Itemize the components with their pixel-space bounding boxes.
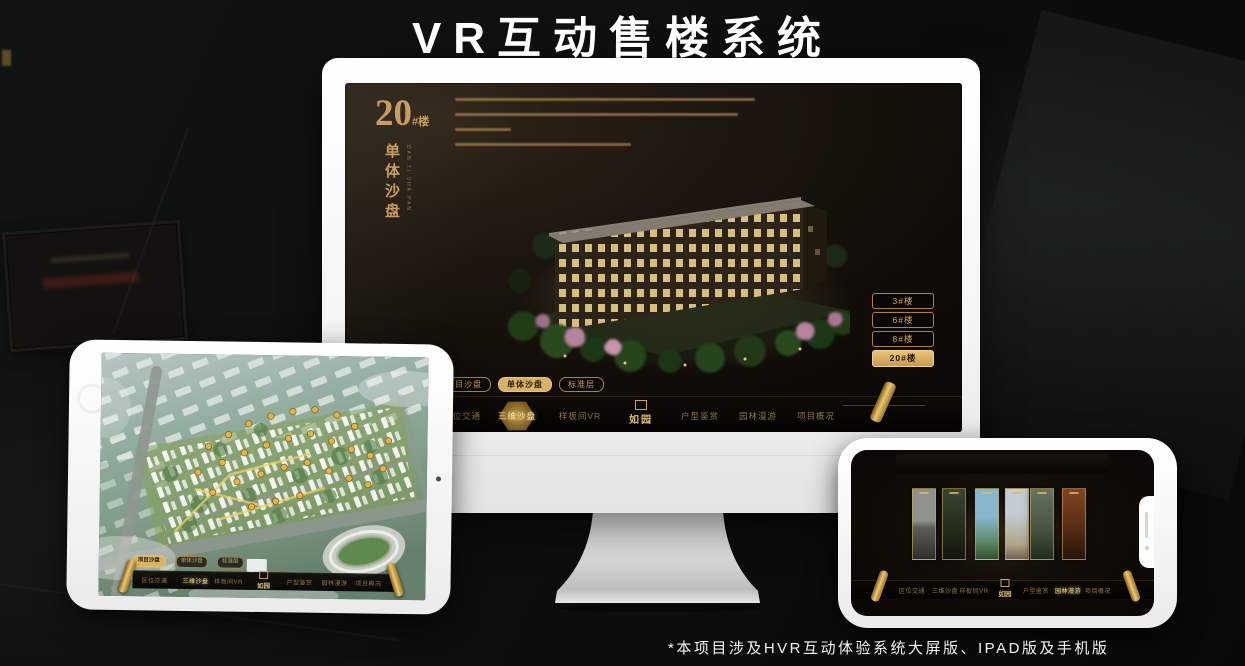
tab-standard-floor[interactable]: 标准层 (217, 556, 244, 568)
page-title: VR互动售楼系统 (0, 2, 1245, 66)
monitor-stand-graphic (550, 511, 765, 613)
menu-item-garden-tour[interactable]: 园林漫游 (1055, 586, 1081, 595)
brand-seal-icon (635, 400, 647, 410)
menu-item-garden-tour[interactable]: 园林漫游 (739, 410, 777, 422)
background-plaque (2, 220, 188, 352)
floor-button-group: 3#楼 6#楼 8#楼 20#楼 (872, 293, 934, 370)
building-3d-view[interactable] (505, 151, 850, 386)
brand-logo: 如园 (257, 571, 270, 590)
promo-canvas: VR互动售楼系统 20#楼 单体沙盘 DAN TI SHA PAN (0, 0, 1245, 666)
camera-dot-icon (1145, 546, 1149, 550)
menu-item-floorplans[interactable]: 户型鉴赏 (1023, 586, 1049, 595)
menu-item-project-overview[interactable]: 项目概况 (797, 410, 835, 422)
floor-button-20[interactable]: 20#楼 (872, 350, 934, 367)
menu-item-3d-sandbox[interactable]: 三维沙盘 (498, 410, 536, 422)
intro-text-line (455, 143, 631, 146)
menu-item-project-overview[interactable]: 项目概况 (355, 578, 381, 587)
pavilion-roof-silhouette (896, 454, 1108, 474)
gallery-panel-4[interactable] (1005, 488, 1029, 560)
phone-screen[interactable]: 区位交通 三维沙盘 样板间VR 如园 户型鉴赏 园林漫游 项目概况 (851, 450, 1154, 616)
floor-button-3[interactable]: 3#楼 (872, 293, 934, 309)
menu-item-floorplans[interactable]: 户型鉴赏 (681, 410, 719, 422)
menu-item-3d-sandbox[interactable]: 三维沙盘 (182, 576, 208, 585)
background-photo (937, 10, 1245, 500)
menu-item-floorplans[interactable]: 户型鉴赏 (286, 577, 312, 586)
brand-logo: 如园 (999, 579, 1012, 598)
menu-item-project-overview[interactable]: 项目概况 (1085, 586, 1111, 595)
menu-item-location[interactable]: 区位交通 (141, 575, 167, 584)
menu-item-location[interactable]: 区位交通 (899, 586, 925, 595)
building-title: 20#楼 (375, 95, 429, 132)
ipad-screen[interactable]: 项目沙盘 单体沙盘 标准层 区位交通 三维沙盘 样板间VR 如园 户型鉴赏 园林… (98, 353, 428, 601)
menu-item-garden-tour[interactable]: 园林漫游 (321, 578, 347, 587)
floor-button-6[interactable]: 6#楼 (872, 312, 934, 328)
tab-single-sandbox[interactable]: 单体沙盘 (176, 556, 208, 568)
building-subtitle-en: DAN TI SHA PAN (405, 145, 411, 225)
ipad-device: 项目沙盘 单体沙盘 标准层 区位交通 三维沙盘 样板间VR 如园 户型鉴赏 园林… (66, 339, 454, 614)
gallery-panel-5[interactable] (1030, 488, 1054, 560)
gallery-panel-3[interactable] (975, 488, 999, 560)
building-number-suffix: #楼 (412, 116, 429, 128)
phone-notch (1139, 496, 1154, 568)
brand-seal-icon (259, 571, 268, 579)
intro-text-line (455, 113, 738, 116)
menu-item-showroom-vr[interactable]: 样板间VR (960, 586, 989, 595)
intro-text-line (455, 98, 755, 101)
menu-item-showroom-vr[interactable]: 样板间VR (559, 410, 601, 422)
phone-device: 区位交通 三维沙盘 样板间VR 如园 户型鉴赏 园林漫游 项目概况 (838, 438, 1177, 628)
monitor-stand (550, 511, 765, 618)
menu-item-showroom-vr[interactable]: 样板间VR (214, 576, 243, 585)
brand-logo: 如园 (629, 400, 653, 426)
tab-single-sandbox[interactable]: 单体沙盘 (498, 377, 552, 392)
ipad-camera-icon (436, 476, 441, 481)
intro-text-line (455, 128, 511, 131)
floor-button-8[interactable]: 8#楼 (872, 331, 934, 347)
building-number: 20 (375, 95, 412, 132)
tab-standard-floor[interactable]: 标准层 (559, 377, 604, 392)
gallery-panel-2[interactable] (942, 488, 966, 560)
gallery-panel-1[interactable] (912, 488, 936, 560)
tab-project-sandbox[interactable]: 项目沙盘 (132, 555, 166, 567)
gallery-panel-6[interactable] (1062, 488, 1086, 560)
speaker-slit-icon (1145, 512, 1148, 538)
footnote: *本项目涉及HVR互动体验系统大屏版、IPAD版及手机版 (668, 637, 1109, 658)
building-subtitle-vertical: 单体沙盘 (381, 143, 402, 235)
menu-item-3d-sandbox[interactable]: 三维沙盘 (932, 586, 958, 595)
brand-seal-icon (1001, 579, 1010, 587)
view-tab-group: 项目沙盘 单体沙盘 标准层 (437, 377, 604, 392)
